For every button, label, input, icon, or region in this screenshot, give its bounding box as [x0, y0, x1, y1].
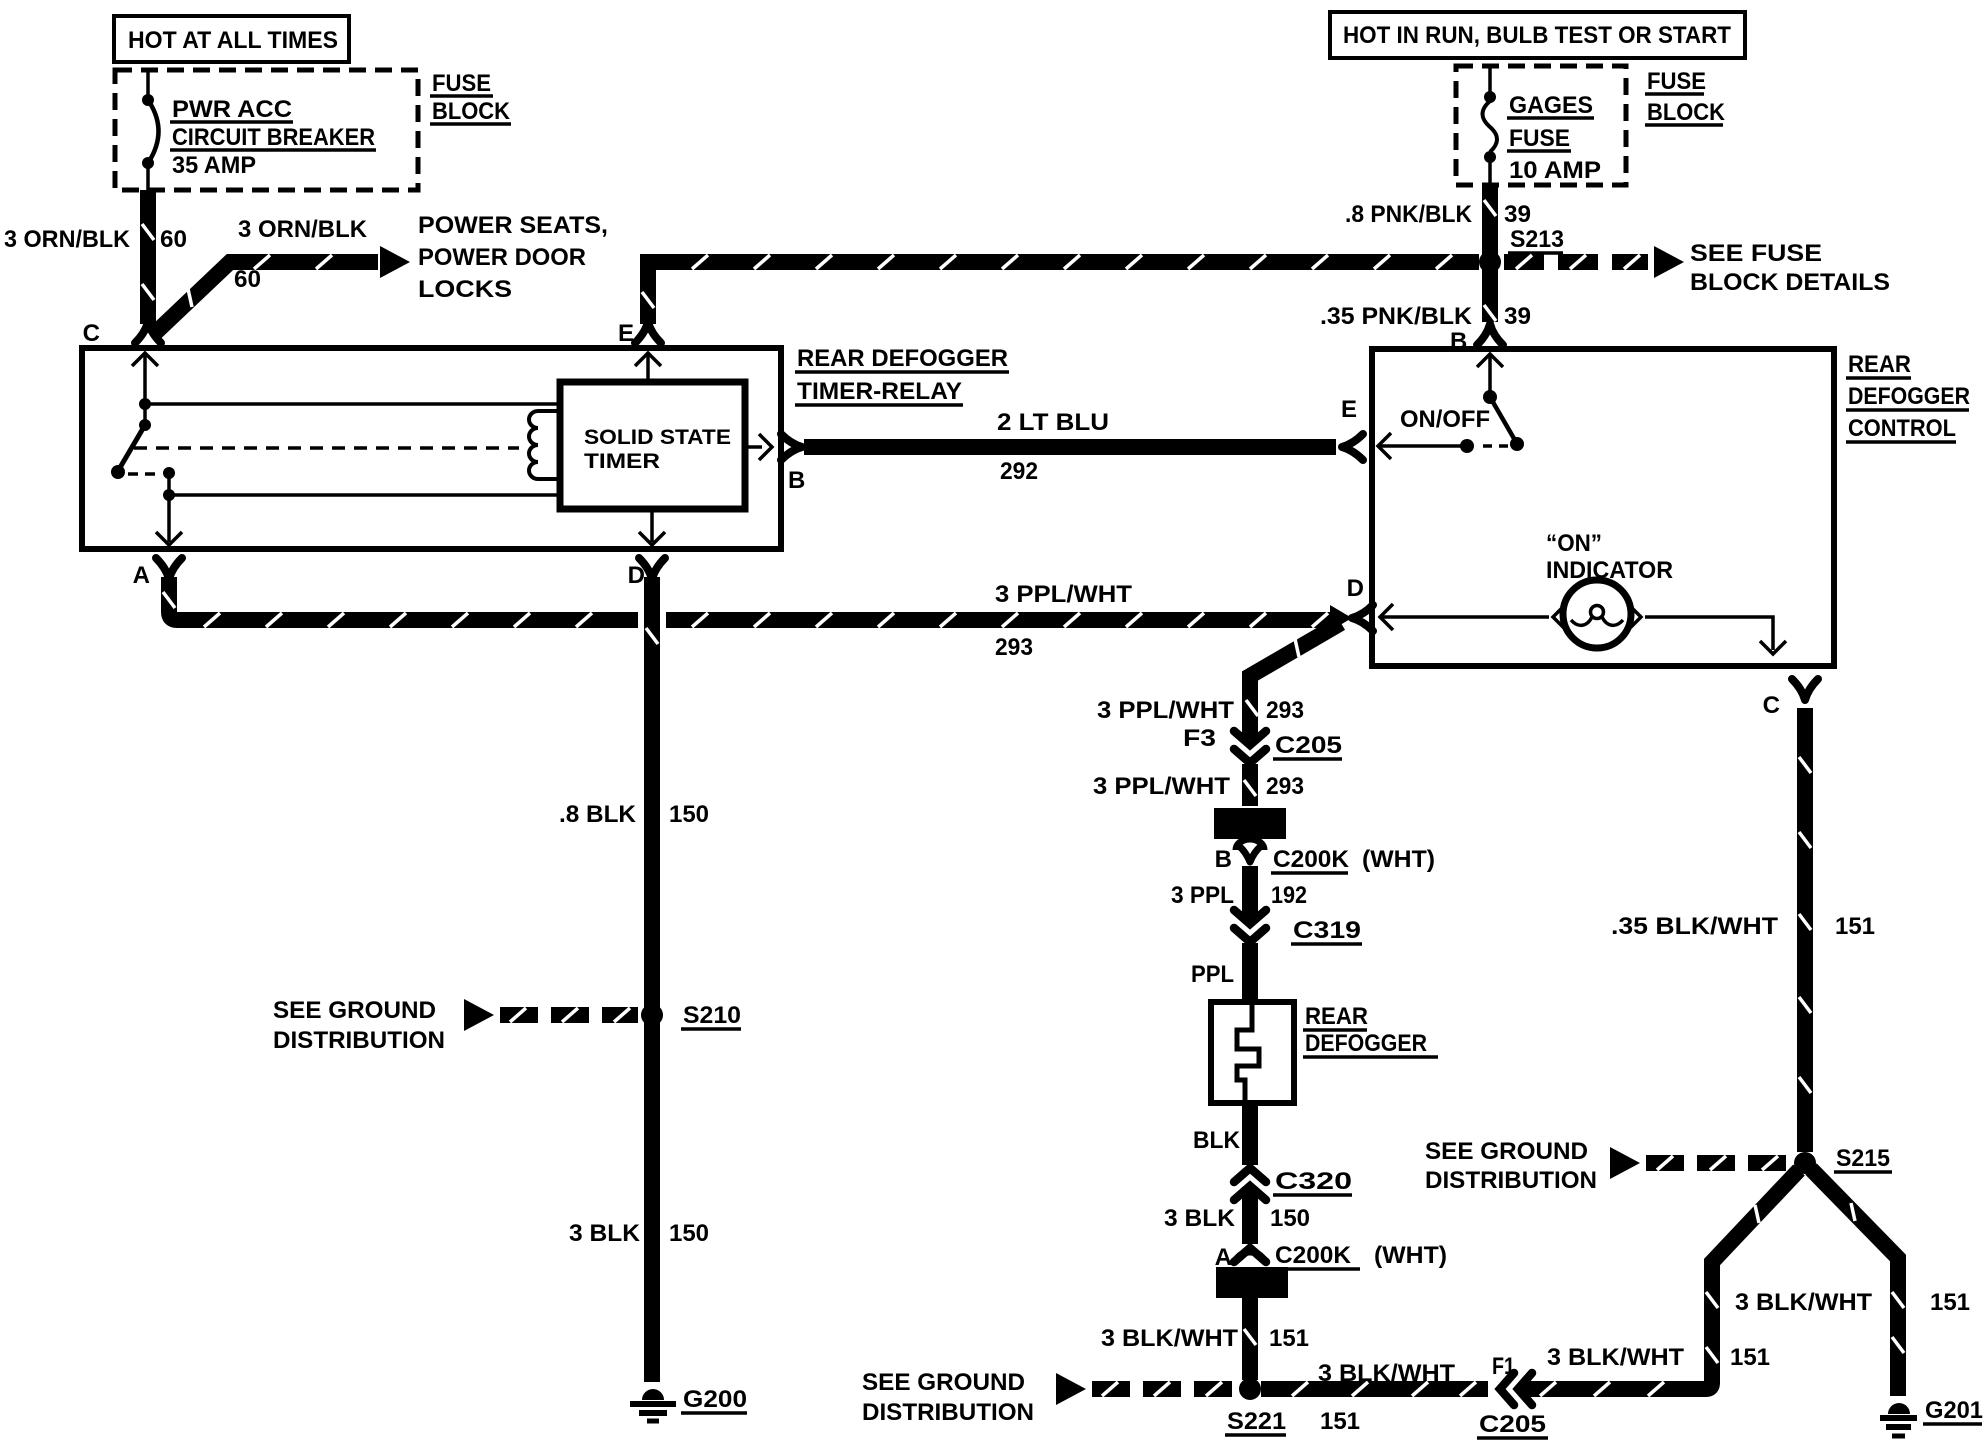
svg-text:GAGES: GAGES	[1509, 92, 1593, 119]
svg-text:ON/OFF: ON/OFF	[1400, 406, 1490, 433]
svg-text:C320: C320	[1275, 1168, 1352, 1195]
svg-text:3 PPL/WHT: 3 PPL/WHT	[1093, 773, 1230, 800]
svg-text:(WHT): (WHT)	[1374, 1242, 1447, 1269]
svg-text:FUSE: FUSE	[1647, 68, 1706, 95]
svg-text:151: 151	[1835, 913, 1875, 940]
svg-text:CIRCUIT BREAKER: CIRCUIT BREAKER	[172, 124, 375, 151]
svg-text:SEE GROUND: SEE GROUND	[273, 997, 436, 1024]
svg-text:150: 150	[669, 1220, 709, 1247]
svg-text:HOT AT ALL TIMES: HOT AT ALL TIMES	[128, 27, 338, 54]
svg-text:SEE GROUND: SEE GROUND	[862, 1369, 1025, 1396]
svg-text:PWR ACC: PWR ACC	[172, 96, 292, 123]
svg-text:DISTRIBUTION: DISTRIBUTION	[1425, 1167, 1597, 1194]
svg-text:A: A	[133, 562, 150, 589]
svg-text:C200K: C200K	[1275, 1242, 1352, 1269]
svg-text:292: 292	[1000, 458, 1038, 485]
svg-text:E: E	[1341, 396, 1357, 423]
svg-text:C319: C319	[1293, 917, 1361, 944]
svg-text:.8 PNK/BLK: .8 PNK/BLK	[1345, 201, 1473, 228]
svg-text:DISTRIBUTION: DISTRIBUTION	[273, 1027, 445, 1054]
svg-text:B: B	[788, 467, 805, 494]
svg-text:CONTROL: CONTROL	[1848, 415, 1956, 442]
svg-text:SOLID STATE: SOLID STATE	[584, 426, 731, 449]
svg-text:C: C	[83, 320, 100, 347]
svg-text:REAR: REAR	[1848, 351, 1911, 378]
svg-text:DISTRIBUTION: DISTRIBUTION	[862, 1399, 1034, 1426]
svg-text:3 BLK/WHT: 3 BLK/WHT	[1735, 1289, 1872, 1316]
svg-text:192: 192	[1271, 882, 1307, 909]
svg-text:35 AMP: 35 AMP	[172, 152, 256, 179]
svg-text:POWER SEATS,: POWER SEATS,	[418, 212, 608, 239]
svg-text:D: D	[1347, 575, 1364, 602]
svg-text:A: A	[1215, 1244, 1232, 1271]
svg-text:REAR: REAR	[1305, 1003, 1368, 1030]
svg-text:293: 293	[1266, 697, 1304, 724]
svg-text:BLOCK DETAILS: BLOCK DETAILS	[1690, 269, 1890, 296]
svg-text:150: 150	[669, 801, 709, 828]
svg-text:39: 39	[1504, 201, 1531, 228]
svg-text:C205: C205	[1275, 732, 1342, 759]
svg-text:S221: S221	[1227, 1408, 1286, 1435]
svg-text:“ON”: “ON”	[1546, 530, 1602, 557]
svg-text:S210: S210	[683, 1002, 741, 1029]
svg-text:60: 60	[160, 226, 187, 253]
svg-text:POWER DOOR: POWER DOOR	[418, 244, 586, 271]
svg-text:F3: F3	[1183, 725, 1216, 752]
svg-text:3 BLK/WHT: 3 BLK/WHT	[1547, 1344, 1684, 1371]
svg-text:C: C	[1763, 692, 1780, 719]
svg-text:3 BLK/WHT: 3 BLK/WHT	[1318, 1360, 1455, 1387]
svg-text:B: B	[1215, 846, 1232, 873]
svg-text:150: 150	[1270, 1205, 1310, 1232]
svg-text:S213: S213	[1510, 226, 1564, 253]
svg-text:DEFOGGER: DEFOGGER	[1848, 383, 1970, 410]
svg-text:(WHT): (WHT)	[1362, 846, 1435, 873]
svg-text:.35 PNK/BLK: .35 PNK/BLK	[1320, 303, 1473, 330]
svg-text:.8 BLK: .8 BLK	[559, 801, 637, 828]
svg-text:3 ORN/BLK: 3 ORN/BLK	[238, 216, 368, 243]
svg-text:151: 151	[1730, 1344, 1770, 1371]
svg-text:3 BLK: 3 BLK	[1164, 1205, 1236, 1232]
svg-text:2 LT BLU: 2 LT BLU	[997, 409, 1109, 436]
svg-text:REAR DEFOGGER: REAR DEFOGGER	[797, 345, 1008, 372]
svg-text:G201: G201	[1925, 1397, 1983, 1424]
svg-text:BLOCK: BLOCK	[432, 98, 511, 125]
svg-text:DEFOGGER: DEFOGGER	[1305, 1030, 1427, 1057]
svg-text:C205: C205	[1479, 1411, 1546, 1438]
svg-text:39: 39	[1504, 303, 1531, 330]
svg-text:SEE GROUND: SEE GROUND	[1425, 1138, 1588, 1165]
svg-text:BLK: BLK	[1193, 1127, 1241, 1154]
svg-text:SEE FUSE: SEE FUSE	[1690, 240, 1822, 267]
svg-text:B: B	[1450, 328, 1467, 355]
svg-text:3 PPL/WHT: 3 PPL/WHT	[1097, 697, 1234, 724]
svg-text:151: 151	[1269, 1325, 1309, 1352]
svg-text:3 PPL: 3 PPL	[1171, 882, 1234, 909]
svg-text:151: 151	[1320, 1408, 1360, 1435]
svg-text:3 BLK: 3 BLK	[569, 1220, 641, 1247]
svg-text:LOCKS: LOCKS	[418, 276, 512, 303]
svg-text:3 BLK/WHT: 3 BLK/WHT	[1101, 1325, 1238, 1352]
svg-text:FUSE: FUSE	[432, 70, 491, 97]
svg-text:293: 293	[1266, 773, 1304, 800]
svg-text:.35 BLK/WHT: .35 BLK/WHT	[1611, 913, 1778, 940]
svg-text:293: 293	[995, 634, 1033, 661]
svg-text:G200: G200	[683, 1386, 747, 1413]
svg-text:BLOCK: BLOCK	[1647, 99, 1726, 126]
svg-text:TIMER-RELAY: TIMER-RELAY	[797, 378, 962, 405]
svg-text:FUSE: FUSE	[1509, 125, 1570, 152]
svg-text:HOT IN RUN, BULB TEST OR START: HOT IN RUN, BULB TEST OR START	[1343, 22, 1731, 49]
svg-text:60: 60	[234, 266, 261, 293]
svg-text:3 ORN/BLK: 3 ORN/BLK	[4, 226, 131, 253]
svg-text:10 AMP: 10 AMP	[1509, 157, 1601, 184]
svg-text:151: 151	[1930, 1289, 1970, 1316]
svg-text:3 PPL/WHT: 3 PPL/WHT	[995, 581, 1132, 608]
svg-text:TIMER: TIMER	[584, 450, 660, 473]
svg-text:S215: S215	[1836, 1145, 1890, 1172]
svg-text:C200K: C200K	[1273, 846, 1350, 873]
svg-text:PPL: PPL	[1191, 961, 1234, 988]
